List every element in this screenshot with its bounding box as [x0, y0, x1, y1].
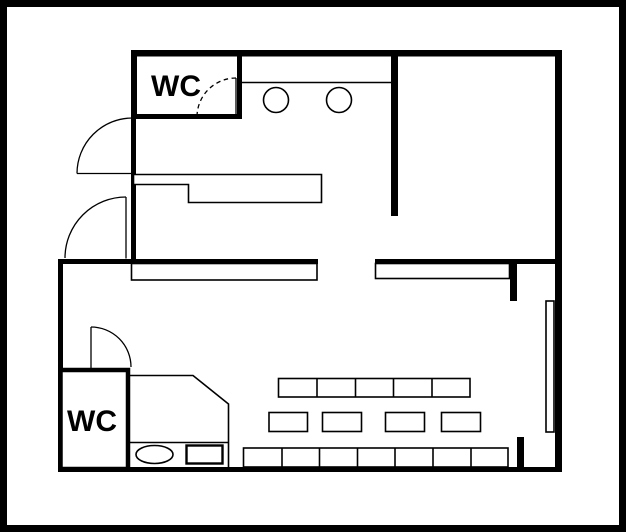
- sink-basin-right: [327, 88, 352, 113]
- appliance-box: [187, 446, 223, 464]
- table-middle-1: [269, 413, 308, 432]
- wall-stub-lower: [517, 437, 524, 467]
- wc-lower-label: WC: [67, 405, 117, 438]
- table-row-bottom: [244, 448, 509, 467]
- table-row-top: [279, 379, 471, 398]
- basin-oval: [136, 446, 173, 464]
- wall-stub-upper: [510, 264, 517, 301]
- wall-interior-upper: [391, 50, 398, 216]
- floor-plan: WC WC: [0, 0, 626, 532]
- table-middle-3: [386, 413, 425, 432]
- table-middle-4: [442, 413, 481, 432]
- table-middle-2: [323, 413, 362, 432]
- middle-counter-right: [376, 264, 510, 279]
- middle-counter-left: [132, 264, 318, 281]
- floor-plan-canvas: WC WC: [0, 0, 626, 532]
- wc-room-upper: WC: [135, 54, 240, 117]
- wc-upper-label: WC: [151, 70, 201, 103]
- sink-basin-left: [264, 88, 289, 113]
- right-wall-shelf: [546, 301, 554, 432]
